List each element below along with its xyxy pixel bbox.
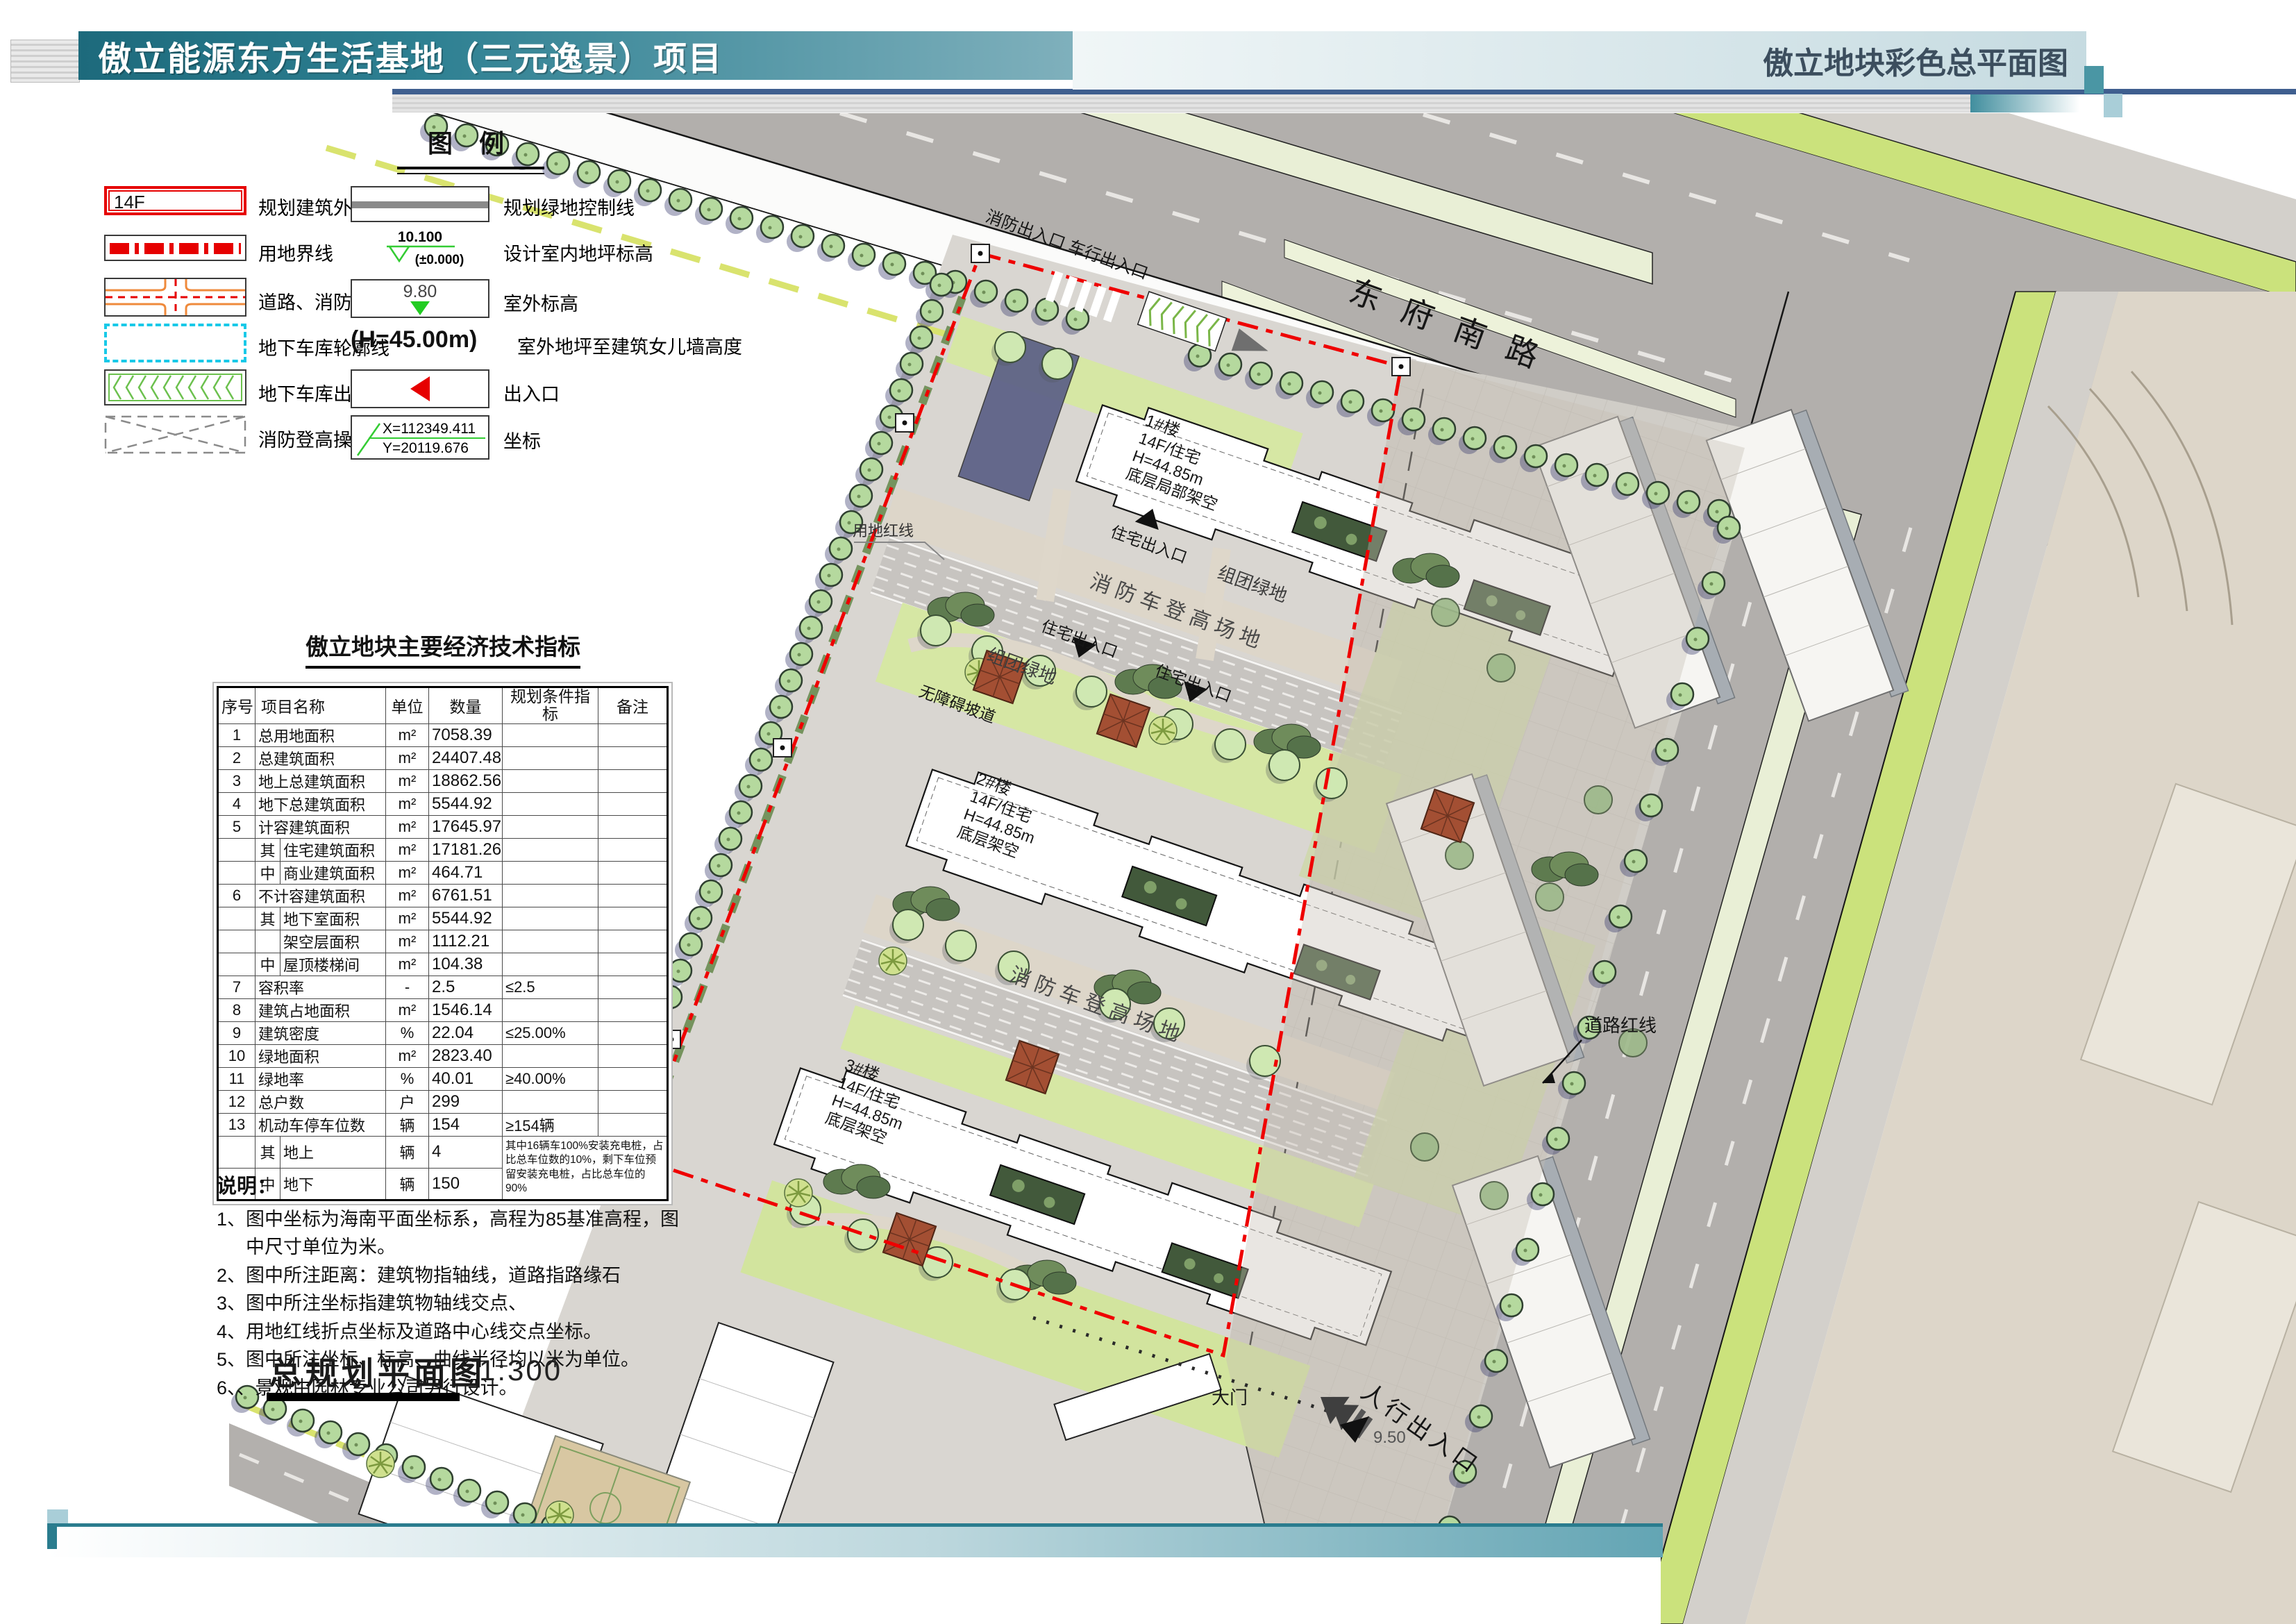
footer-gradient-bar <box>47 1527 1663 1557</box>
teal-square-decoration <box>2104 94 2122 117</box>
table-row: 8建筑占地面积m²1546.14 <box>218 998 668 1021</box>
table-row: 7容积率-2.5≤2.5 <box>218 976 668 998</box>
legend-label: 坐标 <box>503 426 541 453</box>
col-header: 规划条件指标 <box>503 687 598 724</box>
sheet-title-panel: 傲立地块彩色总平面图 <box>1073 31 2086 90</box>
legend-title-underline <box>397 167 544 174</box>
gate-label: 大门 <box>1212 1387 1248 1408</box>
col-header: 序号 <box>218 687 255 724</box>
teal-square-decoration <box>47 1509 68 1525</box>
indoor-elevation-value: 10.100 <box>398 229 442 245</box>
legend-label: 室外地坪至建筑女儿墙高度 <box>517 332 742 359</box>
indoor-elevation-symbol: 10.100 (±0.000) <box>351 229 489 274</box>
road-symbol <box>104 278 246 317</box>
coordinate-y: Y=20119.676 <box>383 440 469 456</box>
legend-title: 图 例 <box>397 124 544 160</box>
table-row: 其住宅建筑面积m²17181.26 <box>218 838 668 861</box>
height-symbol: (H=45.00m) <box>351 326 477 353</box>
table-row: 中屋顶楼梯间m²104.38 <box>218 953 668 976</box>
drawing-scale: 1:300 <box>479 1354 562 1387</box>
elevation-label: 9.50 <box>1373 1428 1406 1447</box>
legend-label: 设计室内地坪标高 <box>503 239 653 266</box>
table-row: 13机动车停车位数辆154≥154辆 <box>218 1113 668 1136</box>
table-row: 4地下总建筑面积m²5544.92 <box>218 792 668 815</box>
note-item: 1、图中坐标为海南平面坐标系，高程为85基准高程，图中尺寸单位为米。 <box>217 1205 689 1262</box>
table-row: 1总用地面积m²7058.39 <box>218 723 668 746</box>
header-teal-strip <box>1970 94 2079 112</box>
site-red-line-label: 用地红线 <box>853 522 914 539</box>
legend-label: 规划绿地控制线 <box>503 193 635 220</box>
table-row: 5计容建筑面积m²17645.97 <box>218 815 668 838</box>
header-gray-strip <box>392 94 1970 112</box>
drawing-title-underline <box>267 1393 460 1401</box>
table-row: 6不计容建筑面积m²6761.51 <box>218 884 668 907</box>
note-item: 3、图中所注坐标指建筑物轴线交点、 <box>217 1289 689 1318</box>
table-title: 傲立地块主要经济技术指标 <box>305 628 580 669</box>
table-row: 其地下室面积m²5544.92 <box>218 907 668 930</box>
site-boundary-symbol <box>104 235 246 261</box>
project-title-bar: 傲立能源东方生活基地（三元逸景）项目 <box>78 31 1073 80</box>
table-row: 12总户数户299 <box>218 1090 668 1113</box>
table-row: 3地上总建筑面积m²18862.56 <box>218 769 668 792</box>
sheet-title: 傲立地块彩色总平面图 <box>1763 38 2068 83</box>
entrance-symbol <box>351 369 489 408</box>
drawing-title: 总规划平面图 <box>269 1348 486 1394</box>
bottom-margin <box>0 1557 1661 1624</box>
garage-entrance-symbol <box>104 369 246 405</box>
garage-outline-symbol <box>104 324 246 362</box>
green-control-line-symbol <box>351 186 489 222</box>
table-row: 10绿地面积m²2823.40 <box>218 1044 668 1067</box>
legend-14f-text: 14F <box>108 190 242 211</box>
teal-square-decoration <box>2084 66 2104 94</box>
note-item: 2、图中所注距离：建筑物指轴线，道路指路缘石 <box>217 1262 689 1290</box>
coordinate-symbol: X=112349.411 Y=20119.676 <box>351 415 489 460</box>
col-header: 项目名称 <box>255 687 386 724</box>
fire-operation-symbol <box>104 415 246 454</box>
legend-label: 室外标高 <box>503 289 578 316</box>
col-header: 单位 <box>386 687 429 724</box>
notes-title: 说明： <box>217 1172 689 1203</box>
legend-label: 出入口 <box>503 379 560 406</box>
teal-square-decoration <box>47 1527 57 1549</box>
coordinate-x: X=112349.411 <box>383 421 476 437</box>
table-row: 11绿地率%40.01≥40.00% <box>218 1067 668 1090</box>
table-row: 其地上辆4其中16辆车100%安装充电桩，占比总车位数的10%，剩下车位预留安装… <box>218 1136 668 1168</box>
header-rule <box>392 89 2296 94</box>
outdoor-elevation-value: 9.80 <box>403 282 437 301</box>
note-item: 4、用地红线折点坐标及道路中心线交点坐标。 <box>217 1318 689 1346</box>
indicator-table: 序号 项目名称 单位 数量 规划条件指标 备注 1总用地面积m²7058.39 … <box>212 682 673 1205</box>
outdoor-elevation-symbol: 9.80 <box>351 279 489 318</box>
table-row: 2总建筑面积m²24407.48 <box>218 746 668 769</box>
table-row: 中商业建筑面积m²464.71 <box>218 861 668 884</box>
road-red-line-label: 道路红线 <box>1584 1015 1657 1036</box>
plan-sheet: 东府南路 消防出入口 车行出入口 消防车登高场地 消防车登高场地 组团绿地 组团… <box>0 0 2296 1624</box>
table-row: 9建筑密度%22.04≤25.00% <box>218 1021 668 1044</box>
project-title: 傲立能源东方生活基地（三元逸景）项目 <box>98 31 723 80</box>
building-outline-symbol: 14F <box>104 186 246 215</box>
corner-stripes-decoration <box>10 40 80 83</box>
table-row: 架空层面积m²1112.21 <box>218 930 668 953</box>
indoor-elevation-base: (±0.000) <box>415 253 464 267</box>
col-header: 数量 <box>429 687 503 724</box>
col-header: 备注 <box>598 687 668 724</box>
legend-label: 用地界线 <box>258 239 333 266</box>
